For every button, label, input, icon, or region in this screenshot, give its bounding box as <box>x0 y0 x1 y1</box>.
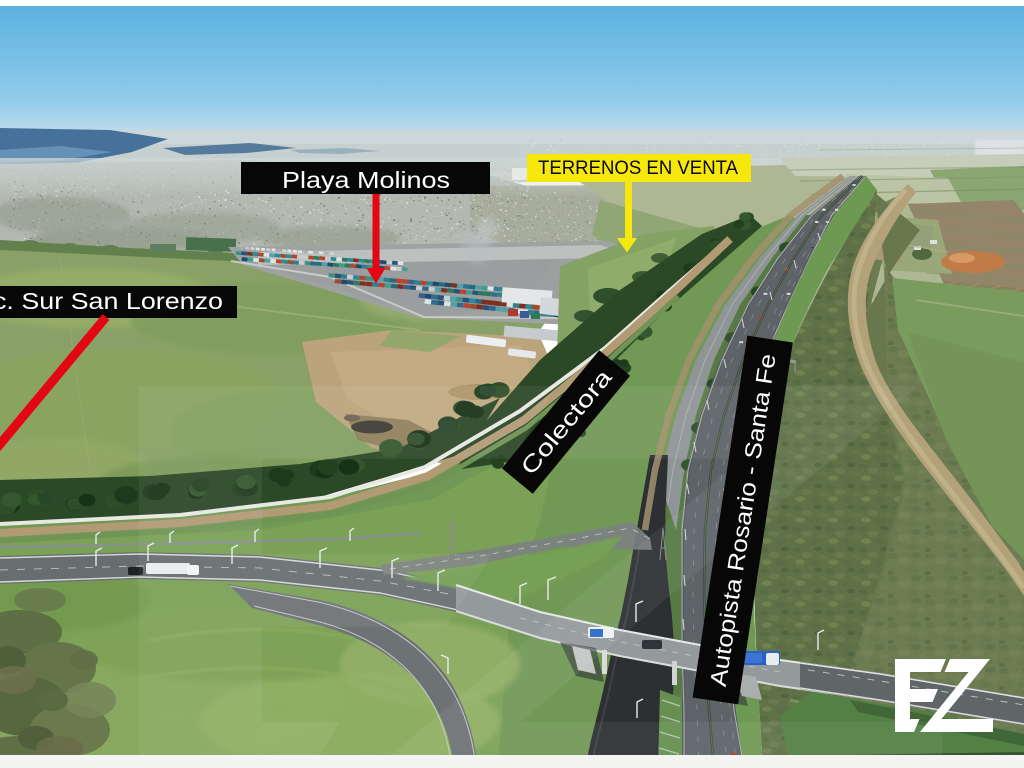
svg-text:Playa Molinos: Playa Molinos <box>282 167 450 193</box>
svg-text:TERRENOS EN VENTA: TERRENOS EN VENTA <box>538 158 738 179</box>
svg-text:c. Sur San Lorenzo: c. Sur San Lorenzo <box>0 288 223 314</box>
